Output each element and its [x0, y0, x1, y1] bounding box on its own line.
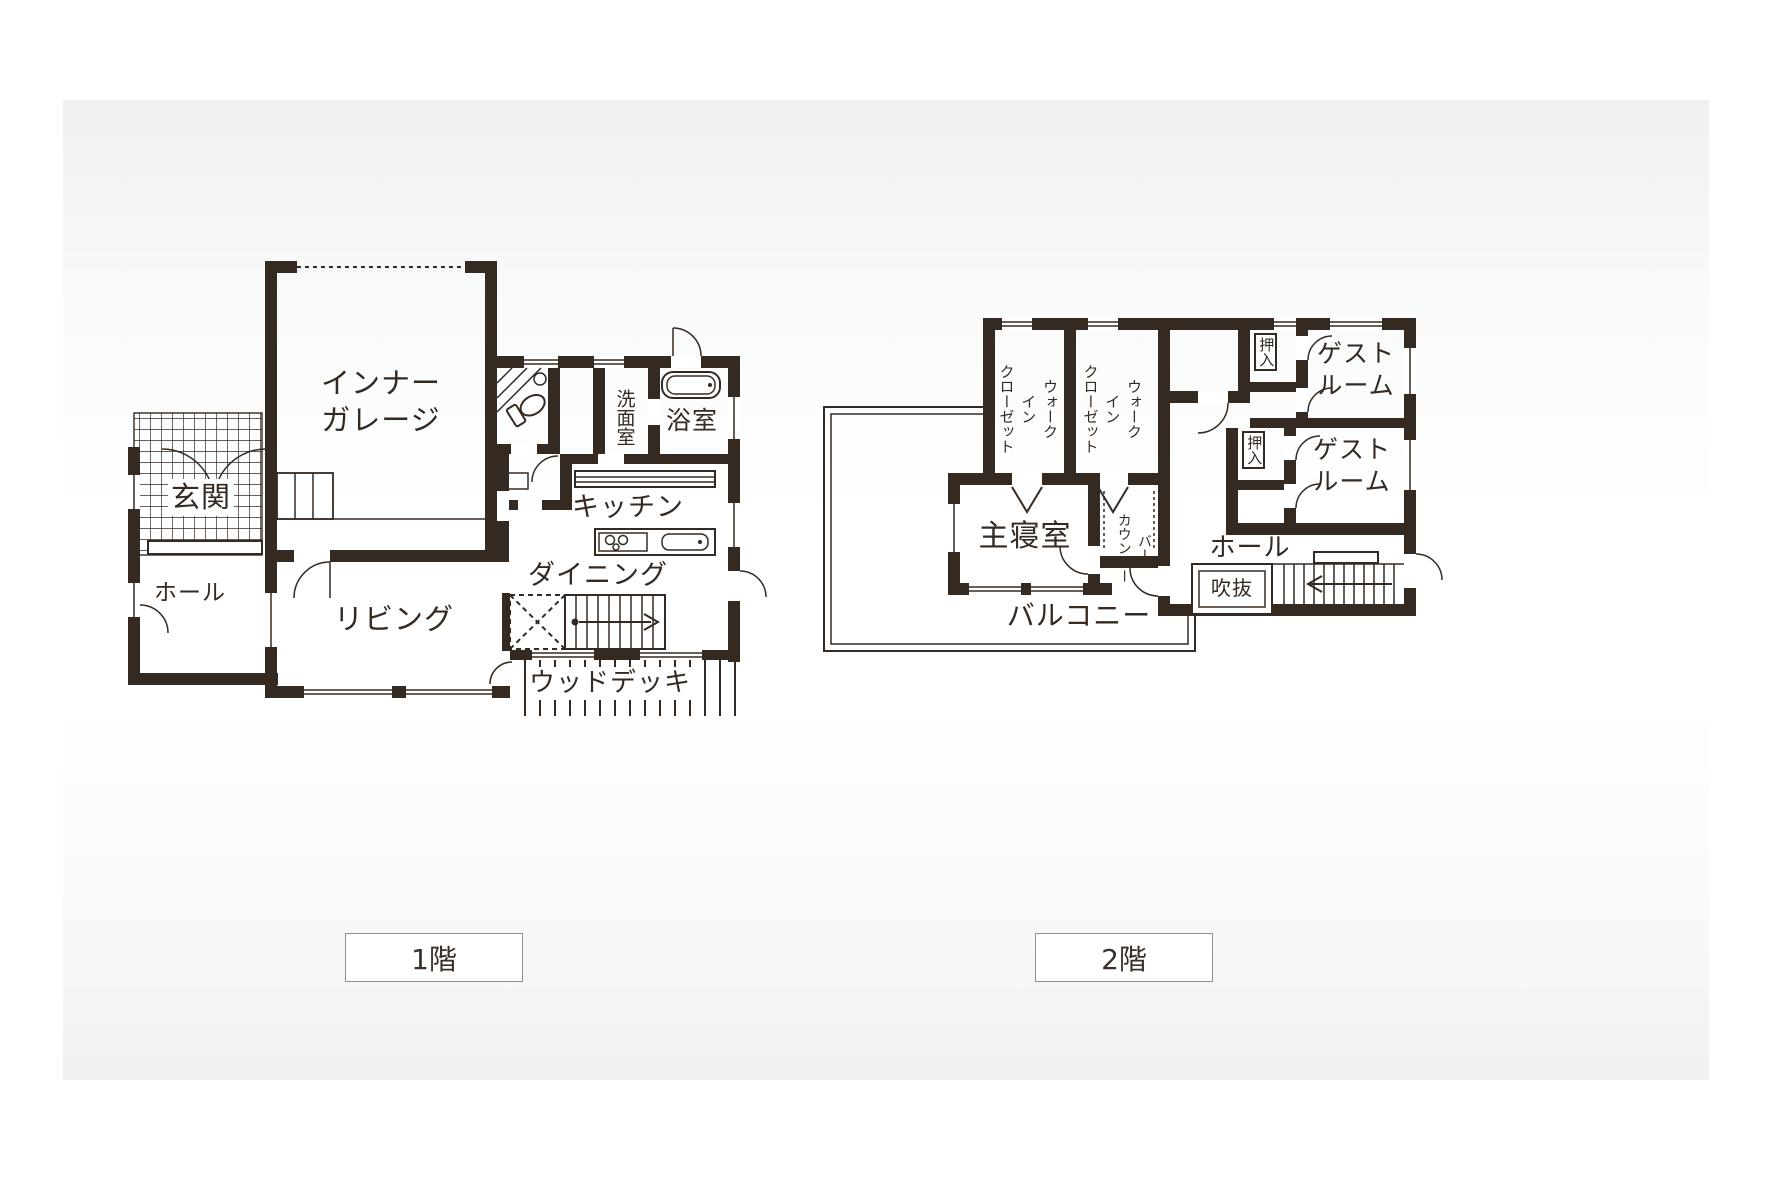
deck-door-arc — [490, 662, 512, 684]
balcony-label: バルコニー — [984, 598, 1174, 634]
bathtub-icon — [662, 372, 720, 398]
floor2-caption: 2階 — [1035, 933, 1213, 982]
corner-sink-icon — [534, 373, 546, 385]
washroom-label: 洗面室 — [610, 377, 638, 457]
garage-label: インナー ガレージ — [303, 365, 459, 439]
wc-door-arc — [1198, 403, 1228, 433]
living-label: リビング — [324, 601, 464, 638]
hall-living-door-arc — [294, 562, 330, 598]
guest2-label: ゲスト ルーム — [1298, 434, 1406, 498]
wic2-label: ウォーク イン クローゼット — [1080, 338, 1144, 480]
floor1-caption: 1階 — [345, 933, 523, 982]
void-label: 吹抜 — [1206, 576, 1258, 602]
bath-exterior-door-arc — [673, 328, 701, 356]
bar-counter-label: バー カウンター — [1108, 492, 1154, 604]
hall2-label: ホール — [1202, 532, 1298, 565]
toilet-room — [497, 368, 560, 454]
master-bedroom-label: 主寝室 — [962, 518, 1088, 556]
floorplan-page: インナー ガレージ 玄関 ホール リビング キッチン ダイニング 洗面室 浴室 … — [0, 0, 1772, 1180]
wic1-label: ウォーク イン クローゼット — [996, 338, 1060, 480]
kitchen-label: キッチン — [558, 491, 698, 526]
kitchen-cabinet — [575, 471, 715, 487]
anteroom-door-arc — [532, 456, 558, 482]
genkan-label: 玄関 — [168, 479, 234, 516]
guest1-label: ゲスト ルーム — [1306, 338, 1406, 402]
floor2-plan: ウォーク イン クローゼット ウォーク イン クローゼット 押入 押入 ゲスト … — [806, 306, 1446, 671]
oshiire1-label: 押入 — [1254, 333, 1277, 371]
bathroom-label: 浴室 — [662, 405, 722, 437]
oshiire2-label: 押入 — [1242, 431, 1265, 469]
hall1-label: ホール — [154, 579, 226, 608]
stairs-floor1 — [565, 595, 665, 649]
wic1-folding-door — [1012, 487, 1042, 512]
floor1-plan: インナー ガレージ 玄関 ホール リビング キッチン ダイニング 洗面室 浴室 … — [128, 253, 768, 723]
dining-label: ダイニング — [518, 559, 678, 594]
wood-deck-label: ウッドデッキ — [526, 667, 694, 700]
kitchen-back-door-arc — [740, 571, 766, 597]
stairs-handrail — [1314, 552, 1378, 563]
hall-exterior-door-arc — [1416, 554, 1442, 580]
